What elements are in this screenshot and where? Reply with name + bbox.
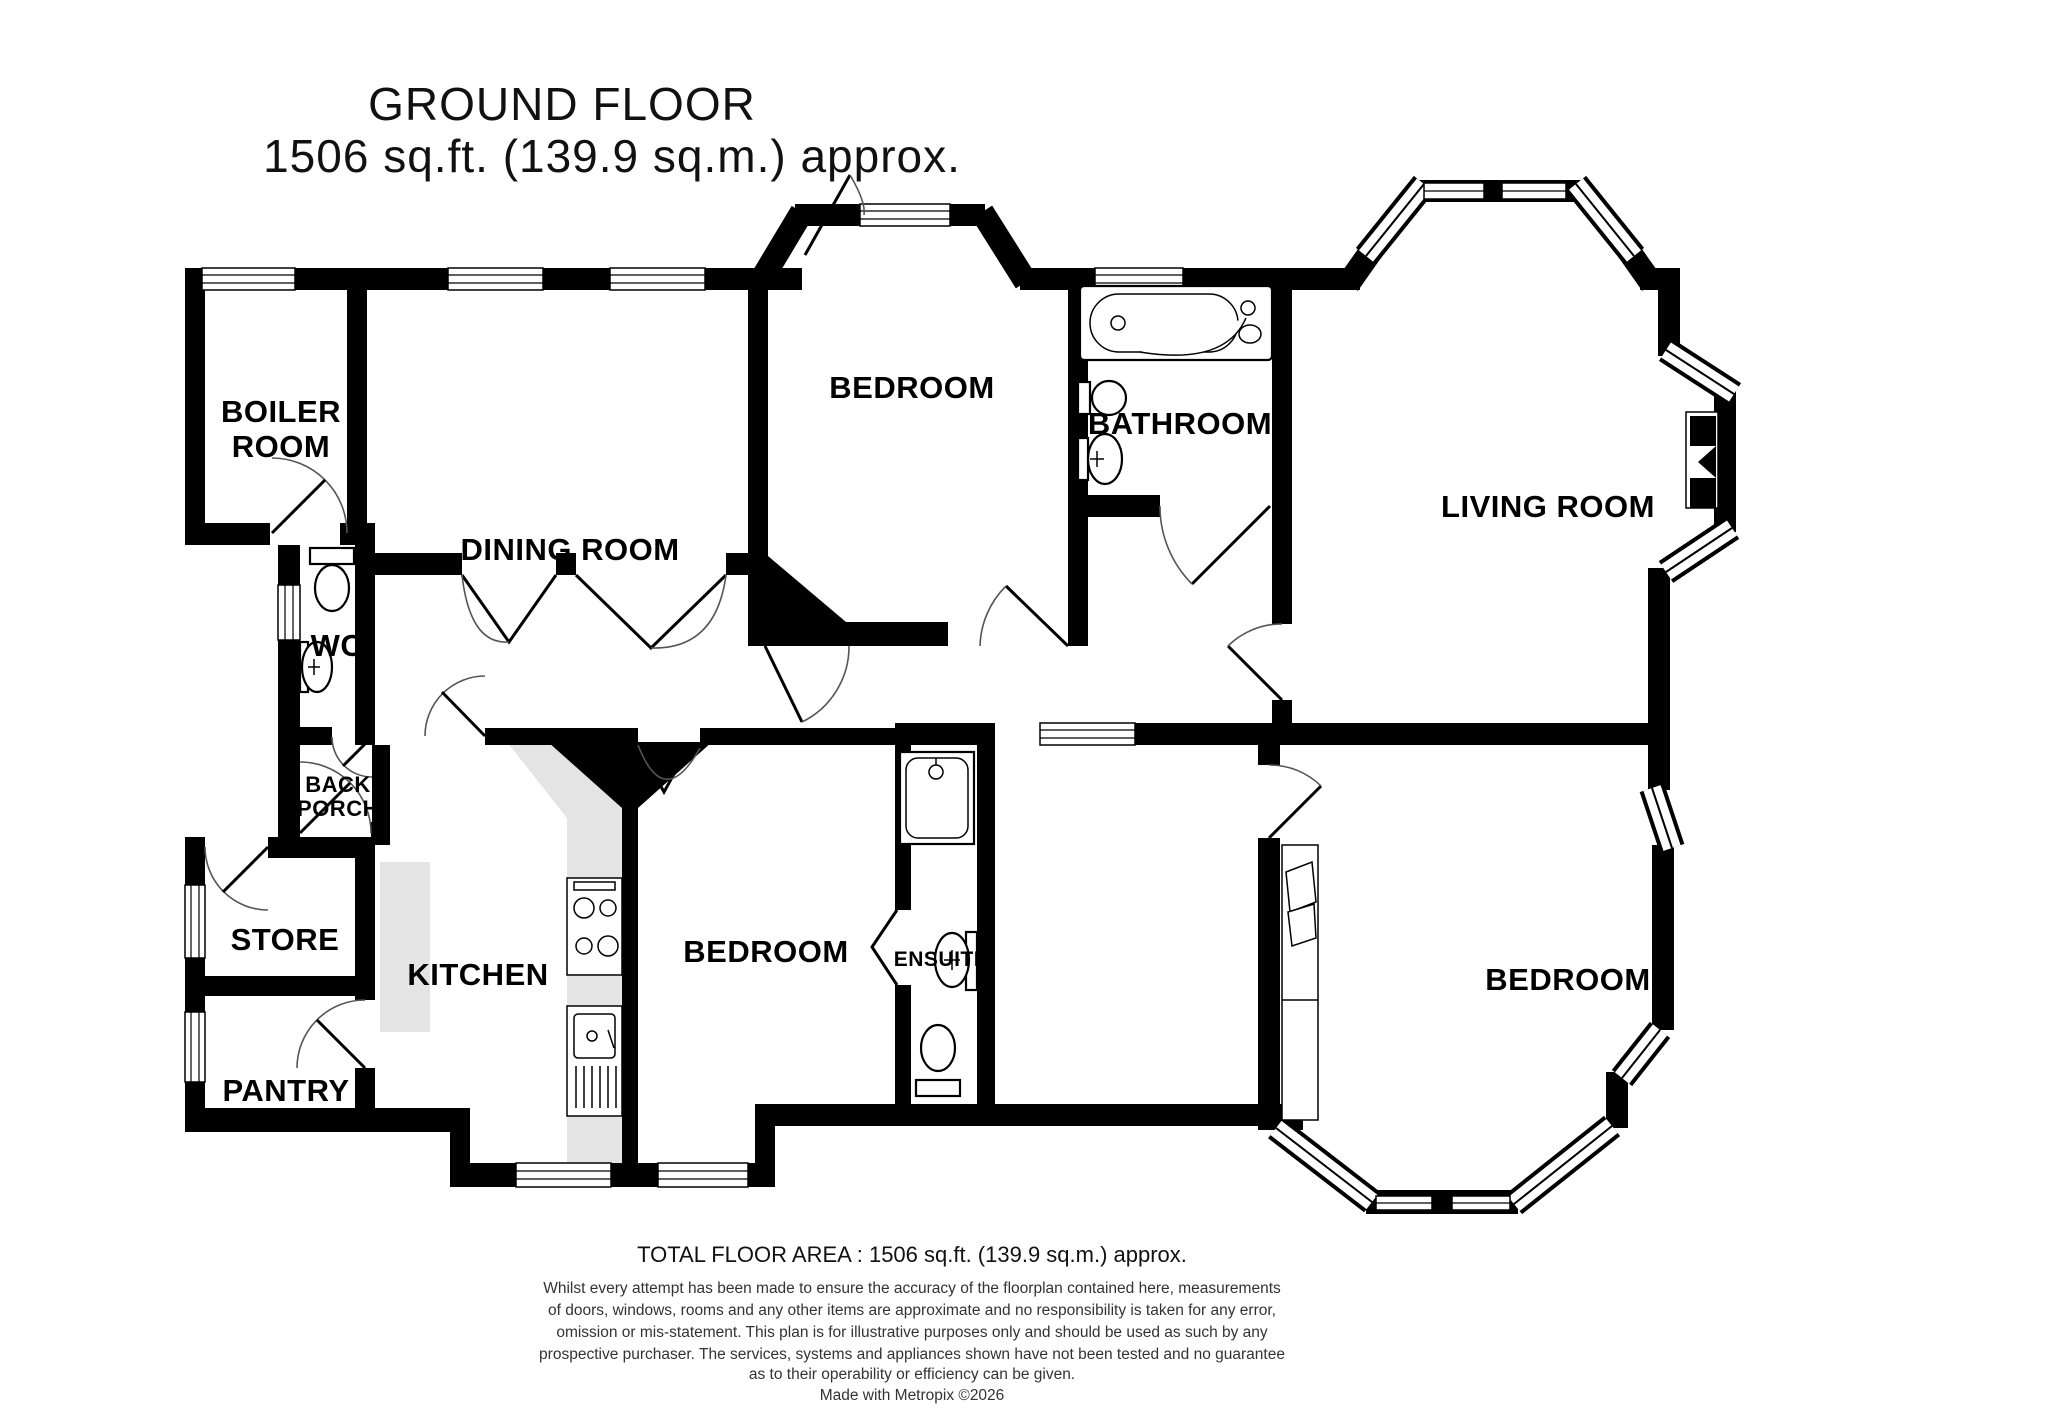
bedroom-middle-window	[658, 1163, 748, 1187]
dining-window-2	[610, 268, 705, 290]
bay2-window-right-pane	[1514, 1126, 1612, 1204]
bathroom-sink	[1078, 434, 1122, 484]
boiler-window	[202, 268, 295, 290]
chimney-triangles	[548, 556, 846, 808]
living-se-window	[1666, 528, 1732, 572]
ensuite-toilet	[916, 1025, 960, 1096]
dining-door-leaf-1	[462, 575, 556, 642]
plan-footer: TOTAL FLOOR AREA : 1506 sq.ft. (139.9 sq…	[539, 1242, 1285, 1404]
room-label-boiler-line1: BOILER	[221, 394, 341, 429]
ensuite-fixtures	[900, 752, 977, 1096]
bay-window-left-pane	[1366, 184, 1424, 256]
boiler-door-leaf	[272, 480, 325, 533]
bathtub	[1080, 286, 1272, 360]
pantry-window	[185, 1012, 205, 1082]
plan-title: GROUND FLOOR 1506 sq.ft. (139.9 sq.m.) a…	[263, 78, 961, 182]
pantry-door-leaf	[317, 1020, 365, 1068]
bathroom-door-arc	[1160, 506, 1192, 584]
kitchen-door-leaf	[442, 692, 485, 736]
footer-disclaimer-1: Whilst every attempt has been made to en…	[543, 1280, 1281, 1297]
bathroom-fixtures	[1078, 286, 1272, 484]
windows	[185, 183, 1566, 1210]
room-label-store: STORE	[231, 922, 340, 957]
room-label-boiler-line2: ROOM	[232, 429, 330, 464]
room-label-bedroom-middle: BEDROOM	[683, 934, 848, 969]
footer-disclaimer-2: of doors, windows, rooms and any other i…	[548, 1302, 1276, 1319]
corridor-door-arc	[802, 646, 849, 722]
room-label-living: LIVING ROOM	[1441, 489, 1655, 524]
kitchen-window	[516, 1163, 611, 1187]
hob	[567, 878, 622, 975]
bathroom-door-leaf	[1192, 506, 1270, 584]
room-label-wc: WC	[311, 628, 364, 663]
room-label-backporch-line1: BACK	[305, 772, 371, 797]
bay-window-right-pane	[1576, 184, 1634, 256]
room-label-backporch-line2: PORCH	[297, 796, 379, 821]
dining-window-1	[448, 268, 543, 290]
room-label-pantry: PANTRY	[223, 1073, 350, 1108]
fireplace	[1686, 412, 1718, 508]
floorplan-page: GROUND FLOOR 1506 sq.ft. (139.9 sq.m.) a…	[0, 0, 2048, 1419]
living-ne-window	[1666, 350, 1734, 394]
room-label-bathroom: BATHROOM	[1088, 406, 1272, 441]
hall-interior-window	[1040, 723, 1135, 745]
walls	[185, 180, 1736, 1214]
store-window	[185, 885, 205, 958]
living-door-leaf	[1228, 646, 1282, 700]
bedroom-right-door-leaf	[1269, 786, 1321, 838]
room-label-dining: DINING ROOM	[460, 532, 679, 567]
floorplan-svg: GROUND FLOOR 1506 sq.ft. (139.9 sq.m.) a…	[0, 0, 2048, 1419]
bedroom-right-fixtures	[1282, 845, 1318, 1120]
footer-disclaimer-5: as to their operability or efficiency ca…	[749, 1366, 1075, 1383]
room-label-bedroom-top: BEDROOM	[829, 370, 994, 405]
room-label-kitchen: KITCHEN	[407, 957, 548, 992]
wc-fixtures	[300, 548, 354, 692]
shower	[900, 752, 974, 844]
corridor-door-leaf	[765, 646, 802, 722]
wc-window	[278, 585, 300, 640]
bedroom-se-window	[1622, 1030, 1660, 1078]
footer-disclaimer-4: prospective purchaser. The services, sys…	[539, 1346, 1285, 1363]
bedroom-right-door-arc	[1269, 765, 1321, 786]
room-label-bedroom-right: BEDROOM	[1485, 962, 1650, 997]
living-door-arc	[1228, 624, 1282, 646]
hall-door-arc	[980, 586, 1006, 646]
wc-toilet	[310, 548, 354, 611]
bedroom-ne-window	[1652, 788, 1672, 848]
entry-window	[860, 204, 950, 226]
hall-door-leaf	[1006, 586, 1068, 646]
footer-disclaimer-3: omission or mis-statement. This plan is …	[556, 1324, 1268, 1341]
wardrobe	[1282, 845, 1318, 1120]
title-line2: 1506 sq.ft. (139.9 sq.m.) approx.	[263, 130, 961, 182]
title-line1: GROUND FLOOR	[368, 78, 756, 130]
room-label-ensuite: ENSUITE	[894, 948, 989, 971]
bay2-window-left-pane	[1276, 1128, 1372, 1202]
dining-door-leaf-2	[576, 575, 726, 648]
footer-total-area: TOTAL FLOOR AREA : 1506 sq.ft. (139.9 sq…	[637, 1242, 1187, 1267]
kitchen-sink	[567, 1006, 622, 1116]
footer-credit: Made with Metropix ©2026	[820, 1387, 1005, 1404]
store-door-leaf	[223, 847, 268, 892]
